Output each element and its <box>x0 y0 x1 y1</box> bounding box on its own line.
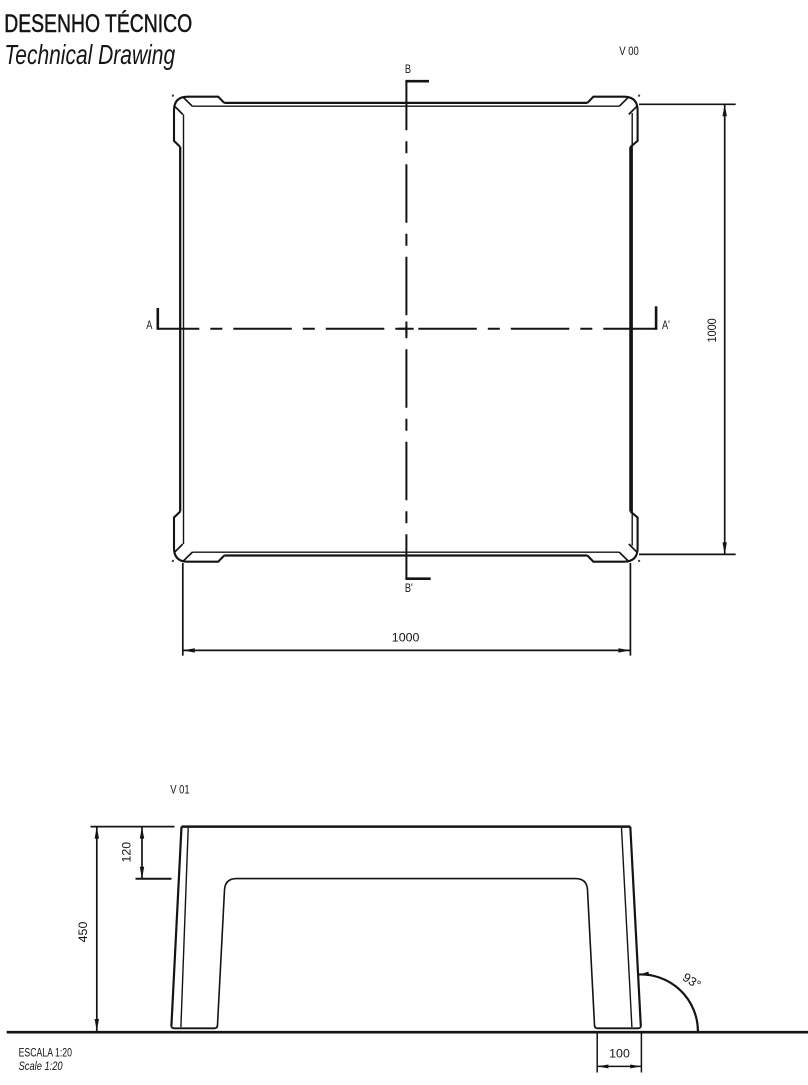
svg-text:Scale 1:20: Scale 1:20 <box>19 1061 63 1073</box>
svg-text:ESCALA 1:20: ESCALA 1:20 <box>19 1048 73 1060</box>
svg-text:1000: 1000 <box>392 630 420 644</box>
svg-text:DESENHO TÉCNICO: DESENHO TÉCNICO <box>4 10 192 38</box>
svg-text:B': B' <box>405 583 413 595</box>
svg-text:450: 450 <box>76 922 90 943</box>
svg-text:1000: 1000 <box>705 318 719 343</box>
svg-text:Technical Drawing: Technical Drawing <box>4 40 175 71</box>
svg-text:V 00: V 00 <box>619 45 638 58</box>
svg-text:100: 100 <box>609 1047 630 1061</box>
svg-text:A: A <box>146 320 152 332</box>
svg-text:B: B <box>405 64 411 76</box>
svg-text:V 01: V 01 <box>170 783 189 796</box>
svg-text:120: 120 <box>119 842 133 863</box>
svg-text:A': A' <box>662 320 670 332</box>
